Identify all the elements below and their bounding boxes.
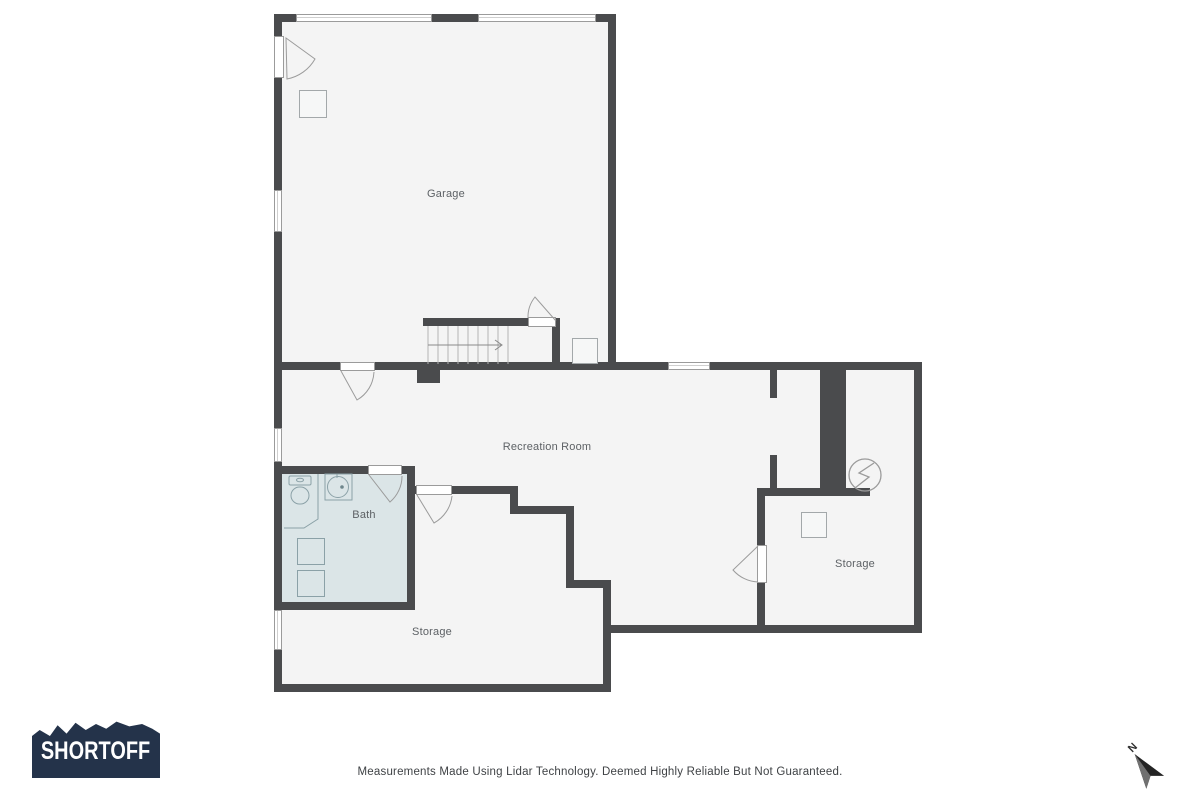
room-label-recreation-room: Recreation Room — [503, 441, 592, 453]
door — [340, 362, 375, 371]
wall-segment — [274, 684, 611, 692]
wall-segment — [274, 78, 282, 190]
wall-segment — [770, 455, 777, 494]
room-storage-bottom-lower — [282, 610, 603, 684]
wall-segment — [274, 462, 282, 610]
chase — [820, 370, 846, 494]
door — [528, 317, 556, 327]
wall-segment — [757, 583, 765, 633]
window — [274, 190, 282, 232]
storage-cabinet — [801, 512, 827, 538]
dryer — [297, 570, 325, 597]
window — [296, 14, 432, 22]
floor-plan: Garage Recreation Room Bath Storage Stor… — [0, 0, 1200, 802]
wall-segment — [274, 232, 282, 362]
wall-segment — [452, 486, 518, 494]
wall-segment — [274, 362, 340, 370]
window — [478, 14, 596, 22]
wall-segment — [770, 370, 777, 398]
room-storage-bottom — [415, 494, 603, 610]
wall-segment — [757, 496, 765, 545]
door — [274, 36, 284, 78]
room-label-bath: Bath — [352, 509, 375, 521]
wall-segment — [710, 362, 922, 370]
wall-segment — [274, 14, 282, 36]
water-heater — [572, 338, 598, 364]
stair-wall — [552, 326, 560, 370]
wall-segment — [566, 506, 574, 588]
wall-segment — [510, 506, 574, 514]
bath-wall — [274, 466, 368, 474]
garage-column — [299, 90, 327, 118]
wall-segment — [914, 362, 922, 633]
wall-segment — [608, 14, 616, 370]
wall-segment — [375, 362, 668, 370]
room-label-storage-bottom: Storage — [412, 626, 452, 638]
window — [274, 428, 282, 462]
disclaimer-text: Measurements Made Using Lidar Technology… — [0, 766, 1200, 778]
room-label-storage-right: Storage — [835, 558, 875, 570]
room-label-garage: Garage — [427, 188, 465, 200]
wall-pier — [417, 370, 440, 383]
bath-wall — [407, 466, 415, 610]
window — [668, 362, 710, 370]
bath-wall — [274, 602, 415, 610]
wall-segment — [274, 370, 282, 428]
door — [416, 485, 452, 495]
washer — [297, 538, 325, 565]
window — [274, 610, 282, 650]
logo-text: SHORTOFF — [41, 738, 150, 766]
door — [757, 545, 767, 583]
door — [368, 465, 402, 475]
wall-segment — [432, 14, 478, 22]
wall-segment — [603, 580, 611, 692]
